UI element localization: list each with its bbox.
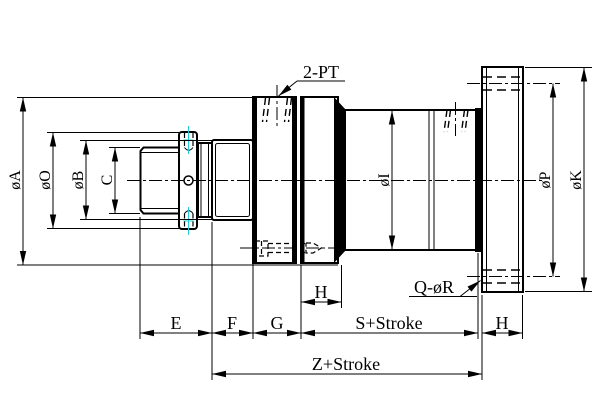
dim-label-f: F xyxy=(227,313,237,333)
dim-label-s-stroke: S+Stroke xyxy=(355,313,422,333)
dim-label-c: C xyxy=(99,175,116,186)
bolt-callout-leader xyxy=(460,281,481,297)
dim-label-dia-k: øK xyxy=(568,170,585,190)
dim-label-dia-o: øO xyxy=(37,170,54,190)
port-callout-label: 2-PT xyxy=(303,62,339,82)
dim-label-e: E xyxy=(171,313,182,333)
dim-label-z-stroke: Z+Stroke xyxy=(312,354,380,374)
mounting-flange xyxy=(482,67,523,292)
port-callout-leader xyxy=(279,81,298,96)
dim-label-dia-i: øI xyxy=(376,173,393,186)
dim-label-dia-b: øB xyxy=(70,171,87,190)
bolt-callout-label: Q-øR xyxy=(414,277,454,297)
dim-label-dia-p: øP xyxy=(537,171,554,188)
dim-label-dia-a: øA xyxy=(7,170,24,190)
cylinder-dimension-drawing: øA øO øB C øI øP øK E F G S+Stroke H H Z… xyxy=(0,0,600,418)
technical-drawing-page: øA øO øB C øI øP øK E F G S+Stroke H H Z… xyxy=(0,0,600,418)
dim-label-h-flange: H xyxy=(496,313,509,333)
dim-label-h-head: H xyxy=(315,282,328,302)
cylinder-body xyxy=(127,67,560,292)
dim-label-g: G xyxy=(271,313,284,333)
